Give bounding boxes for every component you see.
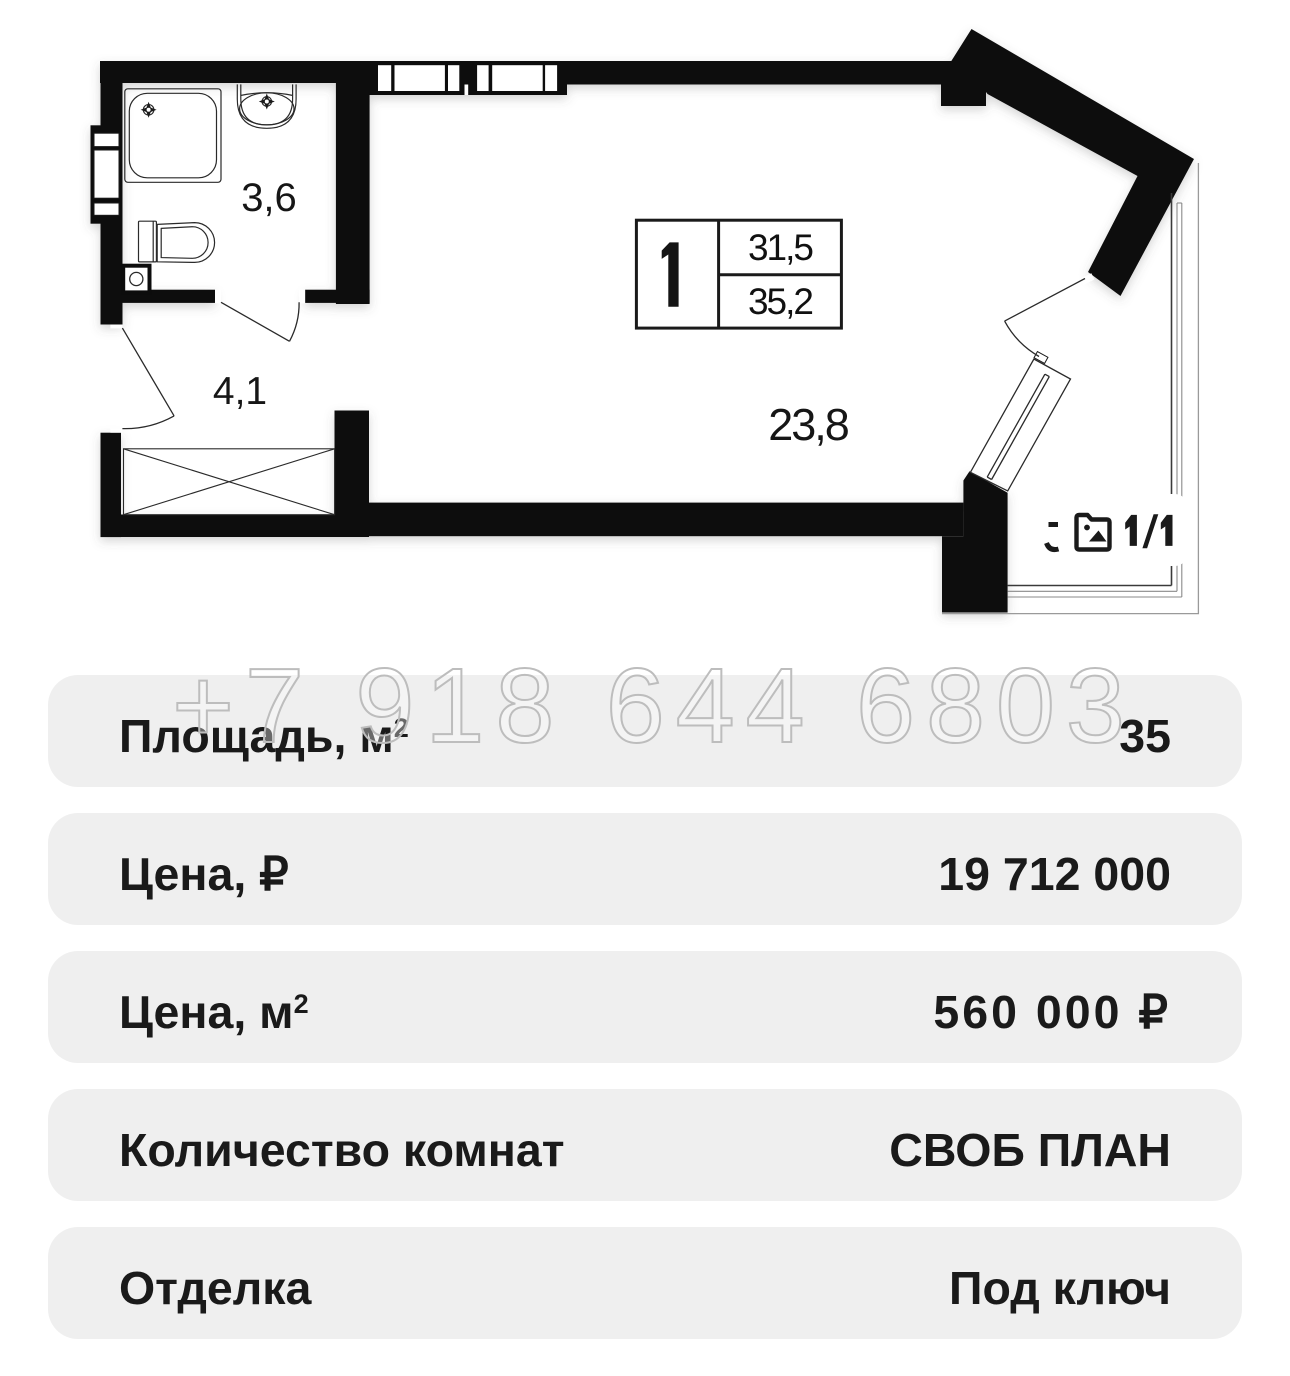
svg-text:23,8: 23,8 (768, 399, 849, 450)
svg-text:35,2: 35,2 (748, 281, 812, 322)
svg-text:31,5: 31,5 (748, 227, 813, 268)
svg-text:3,6: 3,6 (241, 176, 297, 220)
svg-text:4,1: 4,1 (213, 370, 267, 413)
